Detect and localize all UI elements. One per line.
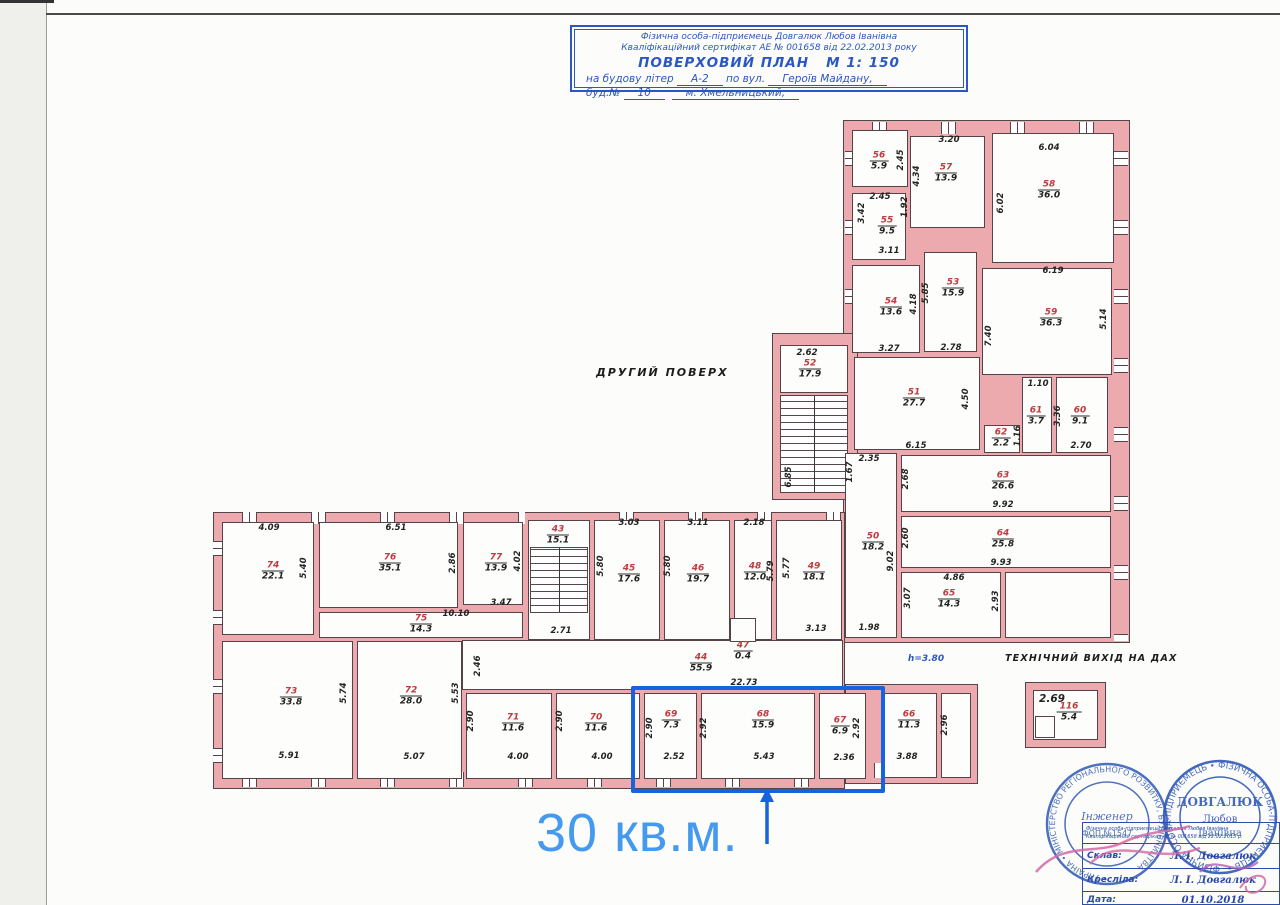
room-label: 609.1 — [1071, 406, 1090, 427]
dimension-label: 3.07 — [903, 588, 913, 609]
room-label: 7111.6 — [502, 713, 524, 734]
dimension-label: 2.86 — [448, 553, 458, 574]
scan-edge — [0, 0, 47, 905]
dimension-label: 1.16 — [1013, 426, 1023, 447]
dimension-label: 2.46 — [473, 656, 483, 677]
dimension-label: 6.51 — [386, 523, 407, 533]
dimension-label: 2.90 — [466, 711, 476, 732]
room-label: 622.2 — [992, 428, 1011, 449]
dimension-label: 5.80 — [663, 556, 673, 577]
room — [730, 618, 756, 642]
dimension-label: 9.93 — [991, 558, 1012, 568]
dimension-label: 6.19 — [1043, 266, 1064, 276]
dimension-label: 5.07 — [404, 752, 425, 762]
dimension-label: 2.18 — [744, 518, 765, 528]
sheet-frame-line — [46, 13, 1280, 15]
dimension-label: 5.53 — [451, 683, 461, 704]
highlight-rectangle — [631, 686, 885, 793]
roof-exit-title: ТЕХНІЧНИЙ ВИХІД НА ДАХ — [1005, 653, 1178, 664]
room — [466, 693, 552, 779]
dimension-label: 2.45 — [896, 150, 906, 171]
room-label: 5315.9 — [942, 278, 964, 299]
room-label: 5936.3 — [1040, 308, 1062, 329]
dimension-label: 5.91 — [279, 751, 300, 761]
room-label: 5413.6 — [880, 297, 902, 318]
room-label: 565.9 — [870, 151, 889, 172]
scanned-floor-plan-sheet: Фізична особа-підприємець Довгалюк Любов… — [0, 0, 1280, 905]
dimension-label: 2.62 — [797, 348, 818, 358]
title-certificate: Кваліфікаційний сертифікат АЕ № 001658 в… — [572, 43, 966, 54]
annotation-up-arrow-icon — [750, 786, 784, 848]
dimension-label: 2.45 — [870, 192, 891, 202]
room-label: 5018.2 — [862, 532, 884, 553]
dimension-label: 2.96 — [940, 715, 950, 736]
room-label: 4517.6 — [618, 564, 640, 585]
title-block: Фізична особа-підприємець Довгалюк Любов… — [570, 25, 968, 92]
dimension-label: 3.27 — [879, 344, 900, 354]
room-label: 613.7 — [1027, 406, 1046, 427]
dimension-label: 6.02 — [996, 193, 1006, 214]
dimension-label: 3.13 — [806, 624, 827, 634]
room — [556, 693, 640, 779]
room-label: 4918.1 — [803, 562, 825, 583]
room-label: 6326.6 — [992, 471, 1014, 492]
room-label: 4315.1 — [547, 525, 569, 546]
dimension-label: 9.92 — [993, 500, 1014, 510]
dimension-label: 2.71 — [551, 626, 572, 636]
dimension-label: 5.85 — [921, 283, 931, 304]
room-label: 7228.0 — [400, 686, 422, 707]
room-label: 6514.3 — [938, 589, 960, 610]
dimension-label: 6.04 — [1039, 143, 1060, 153]
dimension-label: 3.36 — [1053, 406, 1063, 427]
dimension-label: 9.02 — [886, 551, 896, 572]
room-label: 7635.1 — [379, 553, 401, 574]
table-row: Кресліла: Л. І. Довгалюк — [1083, 869, 1279, 892]
room-label: 6611.3 — [898, 710, 920, 731]
room-label: 5713.9 — [935, 163, 957, 184]
room-label: 7333.8 — [280, 687, 302, 708]
dimension-label: 4.02 — [513, 551, 523, 572]
floor-title: ДРУГИЙ ПОВЕРХ — [596, 366, 729, 379]
room-label: 6425.8 — [992, 529, 1014, 550]
room-label: 7713.9 — [485, 553, 507, 574]
dimension-label: 6.85 — [784, 467, 794, 488]
dimension-label: 1.10 — [1028, 379, 1049, 389]
dimension-label: 4.18 — [909, 294, 919, 315]
room-label: 5127.7 — [903, 388, 925, 409]
dimension-label: 4.86 — [944, 573, 965, 583]
dimension-label: 2.60 — [901, 528, 911, 549]
room-label: 7514.3 — [410, 614, 432, 635]
room-label: 4455.9 — [690, 653, 712, 674]
area-callout: 30 кв.м. — [536, 802, 739, 864]
dimension-label: 4.00 — [592, 752, 613, 762]
date-text: 01.10.2018 — [1147, 895, 1279, 905]
dimension-label: 10.10 — [443, 609, 470, 619]
table-row: Дата: 01.10.2018 — [1083, 892, 1279, 905]
room — [881, 693, 937, 778]
height-note: h=3.80 — [908, 654, 944, 664]
dimension-label: 3.03 — [619, 518, 640, 528]
dimension-label: 2.78 — [941, 343, 962, 353]
window-strip — [1114, 124, 1128, 641]
signature-table-header: Фізична особа-підприємець Довгалюк Любов… — [1083, 823, 1279, 844]
dimension-label: 2.90 — [555, 711, 565, 732]
room-label: 5836.0 — [1038, 180, 1060, 201]
dimension-label: 2.68 — [901, 469, 911, 490]
dimension-label: 1.92 — [900, 197, 910, 218]
corridor — [462, 640, 843, 690]
dimension-label: 3.11 — [879, 246, 900, 256]
room-label: 5217.9 — [799, 359, 821, 380]
room-label: 7422.1 — [262, 561, 284, 582]
title-address-line: на будову літер А-2 по вул. Героїв Майда… — [572, 72, 966, 86]
signature-text: Л. І. Довгалюк — [1147, 851, 1279, 862]
staircase — [530, 547, 588, 613]
dimension-label: 5.14 — [1099, 309, 1109, 330]
dimension-label: 3.42 — [857, 203, 867, 224]
dimension-label: 1.67 — [845, 462, 855, 483]
dimension-label: 5.74 — [339, 683, 349, 704]
room-label: 4619.7 — [687, 564, 709, 585]
room — [941, 693, 971, 778]
roof-exit-closet — [1035, 716, 1055, 738]
room-label: 7011.6 — [585, 713, 607, 734]
dimension-label: 1.98 — [859, 623, 880, 633]
plan-title: ПОВЕРХОВИЙ ПЛАН М 1: 150 — [572, 55, 966, 73]
signature-table: Фізична особа-підприємець Довгалюк Любов… — [1082, 822, 1280, 905]
room-label: 470.4 — [734, 641, 753, 662]
room-label: 4812.0 — [744, 562, 766, 583]
room-label: 559.5 — [878, 216, 897, 237]
dimension-label: 5.80 — [596, 556, 606, 577]
dimension-label: 4.34 — [912, 166, 922, 187]
dimension-label: 6.15 — [906, 441, 927, 451]
title-building-line: буд.№ 10 м. Хмельницький, — [572, 86, 966, 100]
dimension-label: 2.93 — [991, 591, 1001, 612]
room — [1005, 572, 1111, 638]
svg-text:ДОВГАЛЮК: ДОВГАЛЮК — [1177, 795, 1263, 809]
dimension-label: 5.77 — [782, 558, 792, 579]
signature-text: Л. І. Довгалюк — [1147, 875, 1279, 886]
dimension-label: 5.40 — [299, 558, 309, 579]
table-row: Склав: Л. І. Довгалюк — [1083, 844, 1279, 869]
dimension-label: 7.40 — [984, 326, 994, 347]
title-owner: Фізична особа-підприємець Довгалюк Любов… — [572, 32, 966, 43]
dimension-label: 2.69 — [1039, 693, 1065, 705]
dimension-label: 4.50 — [961, 389, 971, 410]
dimension-label: 3.11 — [688, 518, 709, 528]
dimension-label: 2.35 — [859, 454, 880, 464]
dimension-label: 4.09 — [259, 523, 280, 533]
dimension-label: 3.88 — [897, 752, 918, 762]
scan-artifact — [0, 0, 54, 3]
dimension-label: 4.00 — [508, 752, 529, 762]
dimension-label: 3.20 — [939, 135, 960, 145]
dimension-label: 3.47 — [491, 598, 512, 608]
room — [924, 252, 977, 352]
dimension-label: 5.79 — [766, 561, 776, 582]
dimension-label: 2.70 — [1071, 441, 1092, 451]
